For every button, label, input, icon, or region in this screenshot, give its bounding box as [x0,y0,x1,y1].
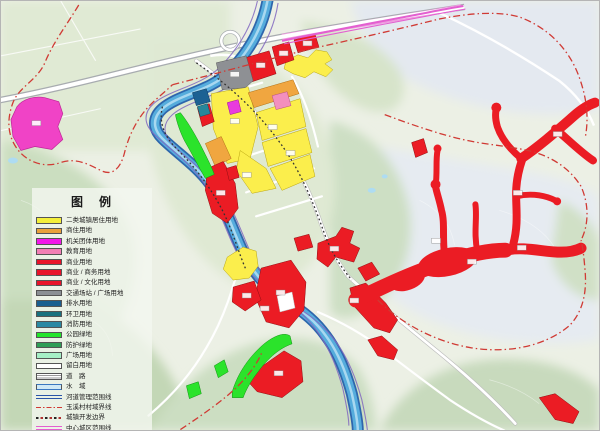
legend-item-label: 防护绿地 [66,342,92,349]
legend-swatch-line-dev [36,415,62,422]
legend-swatch-fill [36,269,62,276]
legend-item-label: 商业 / 文化用地 [66,279,110,286]
legend-item: 留白用地 [36,362,148,369]
legend-swatch-line-village [36,404,62,411]
legend-item: 道 路 [36,373,148,380]
legend-item: 消防用地 [36,321,148,328]
legend-item-label: 商业 / 商务用地 [66,269,110,276]
legend-item-label: 教育用地 [66,248,92,255]
legend-rows: 二类城镇居住用地商住用地机关团体用地教育用地商业用地商业 / 商务用地商业 / … [36,217,148,431]
legend-swatch-fill [36,311,62,318]
legend-item-label: 商住用地 [66,227,92,234]
legend-item: 河道管理范围线 [36,394,148,401]
legend-swatch-fill [36,332,62,339]
legend-item-label: 玉溪村村域界线 [66,404,112,411]
legend-item: 二类城镇居住用地 [36,217,148,224]
legend-item: 环卫用地 [36,311,148,318]
legend-item-label: 河道管理范围线 [66,394,112,401]
legend-swatch-fill [36,238,62,245]
legend-item: 玉溪村村域界线 [36,404,148,411]
legend-item-label: 环卫用地 [66,311,92,318]
legend-item-label: 道 路 [66,373,86,380]
legend-item: 交通场站 / 广场用地 [36,290,148,297]
legend-item-label: 排水用地 [66,300,92,307]
legend-item: 教育用地 [36,248,148,255]
legend-item-label: 留白用地 [66,362,92,369]
legend-item-label: 中心城区范围线 [66,425,112,431]
legend-swatch-fill [36,259,62,266]
legend-item-label: 城镇开发边界 [66,414,105,421]
legend-swatch-line-center [36,425,62,431]
legend-title: 图 例 [36,193,148,210]
legend-item: 机关团体用地 [36,238,148,245]
legend-item: 公园绿地 [36,331,148,338]
legend-swatch-fill [36,248,62,255]
legend-item-label: 广场用地 [66,352,92,359]
legend-item: 商业用地 [36,259,148,266]
legend-item: 商业 / 文化用地 [36,279,148,286]
legend-swatch-fill [36,217,62,224]
legend-swatch-fill [36,342,62,349]
legend-item-label: 交通场站 / 广场用地 [66,290,123,297]
legend-item-label: 消防用地 [66,321,92,328]
legend-swatch-fill [36,363,62,370]
legend-item: 排水用地 [36,300,148,307]
legend-swatch-fill [36,352,62,359]
legend-item-label: 机关团体用地 [66,238,105,245]
legend-item: 防护绿地 [36,342,148,349]
legend-item: 城镇开发边界 [36,414,148,421]
legend-item-label: 商业用地 [66,259,92,266]
legend-item-label: 水 域 [66,383,86,390]
legend-swatch-fill [36,290,62,297]
legend-item: 中心城区范围线 [36,425,148,431]
legend-swatch-fill [36,228,62,235]
legend-item: 广场用地 [36,352,148,359]
legend-item-label: 公园绿地 [66,331,92,338]
legend-item: 商业 / 商务用地 [36,269,148,276]
legend-swatch-fill [36,321,62,328]
legend-swatch-line-river [36,394,62,401]
legend-swatch-fill [36,300,62,307]
legend-swatch-stripes [36,373,62,380]
legend-swatch-water [36,384,62,391]
legend-item: 商住用地 [36,227,148,234]
legend-item-label: 二类城镇居住用地 [66,217,118,224]
planning-map-screenshot: 图 例 二类城镇居住用地商住用地机关团体用地教育用地商业用地商业 / 商务用地商… [0,0,600,431]
legend-swatch-fill [36,280,62,287]
legend-item: 水 域 [36,383,148,390]
legend-panel: 图 例 二类城镇居住用地商住用地机关团体用地教育用地商业用地商业 / 商务用地商… [32,188,152,431]
